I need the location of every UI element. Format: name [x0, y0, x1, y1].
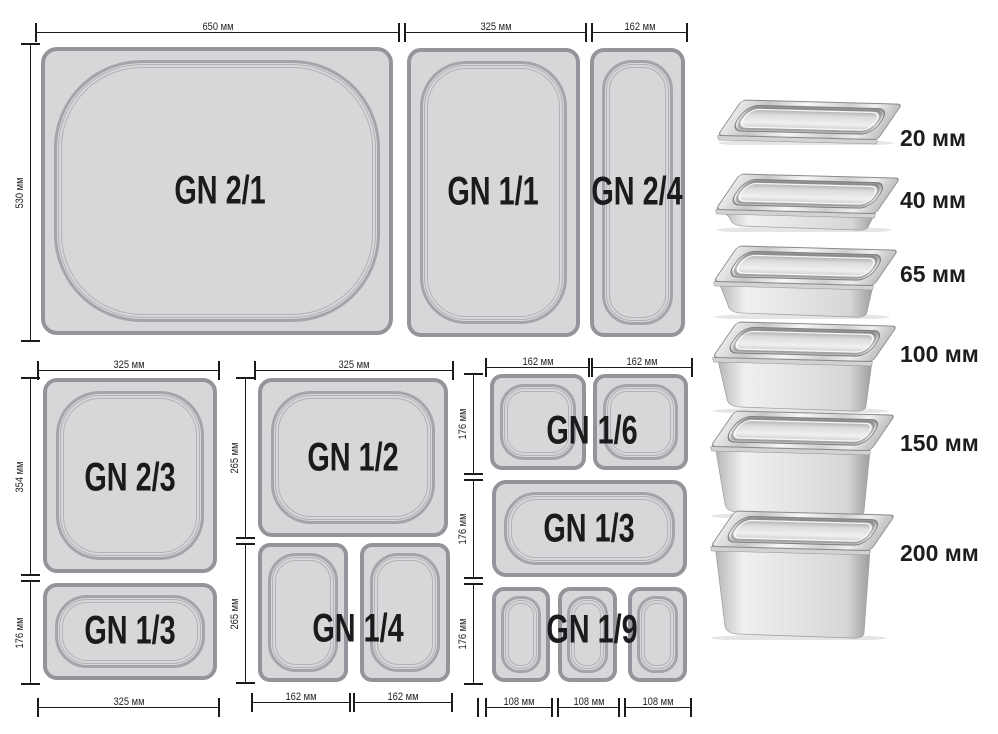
pan-label-gn-1-2: GN 1/2: [307, 436, 398, 481]
dim-br-176-b: 176 мм: [473, 480, 474, 578]
dim-br-top-162-b-label: 162 мм: [626, 356, 657, 368]
pan-label-gn-2-1: GN 2/1: [174, 169, 265, 214]
depth-label-65mm: 65 мм: [900, 260, 966, 288]
dim-bl-bottom-325-label: 325 мм: [113, 696, 144, 708]
dim-br-top-162-a: 162 мм: [486, 367, 589, 368]
pan-label-gn-1-6: GN 1/6: [546, 409, 637, 454]
pan-label-gn-2-4: GN 2/4: [591, 170, 682, 215]
pan-photo-svg: [699, 406, 899, 518]
dim-bl-354: 354 мм: [30, 378, 31, 575]
dim-top-162: 162 мм: [592, 32, 687, 33]
dim-br-bottom-108-b: 108 мм: [558, 707, 619, 708]
depth-label-100mm: 100 мм: [900, 340, 979, 368]
dim-br-bottom-108-a: 108 мм: [486, 707, 552, 708]
dim-br-176-b-label: 176 мм: [457, 513, 469, 544]
pan-label-gn-1-4: GN 1/4: [312, 607, 403, 652]
pan-label-gn-1-3-right: GN 1/3: [543, 507, 634, 552]
pan-rim-line: [508, 603, 534, 666]
depth-label-150mm: 150 мм: [900, 429, 979, 457]
dim-bm-265-b-label: 265 мм: [229, 598, 241, 629]
pan-photo-svg: [699, 506, 899, 640]
dim-br-176-c: 176 мм: [473, 584, 474, 684]
pan-photo-svg: [702, 241, 902, 319]
dim-bl-top-325-label: 325 мм: [113, 359, 144, 371]
dim-left-530-label: 530 мм: [14, 177, 26, 208]
dim-bm-265-a: 265 мм: [245, 378, 246, 538]
dim-bl-bottom-325: 325 мм: [38, 707, 219, 708]
dim-br-bottom-108-c-label: 108 мм: [642, 696, 673, 708]
pan-gn-1-9-a: [492, 587, 550, 682]
dim-bl-176: 176 мм: [30, 581, 31, 684]
dim-bm-bottom-162-a: 162 мм: [252, 702, 350, 703]
pan-label-gn-2-3: GN 2/3: [84, 456, 175, 501]
pan-rim-line: [644, 603, 671, 666]
pan-photo-200mm: [699, 506, 899, 645]
dim-bm-265-a-label: 265 мм: [229, 442, 241, 473]
dim-br-top-162-a-label: 162 мм: [522, 356, 553, 368]
depth-label-200mm: 200 мм: [900, 539, 979, 567]
pan-photo-20mm: [706, 95, 906, 150]
pan-photo-svg: [704, 169, 904, 232]
dim-br-176-a-label: 176 мм: [457, 408, 469, 439]
dim-br-bottom-108-c: 108 мм: [625, 707, 691, 708]
depth-label-20mm: 20 мм: [900, 124, 966, 152]
pan-label-gn-1-9: GN 1/9: [546, 608, 637, 653]
dim-top-325-label: 325 мм: [480, 21, 511, 33]
pan-photo-svg: [701, 317, 901, 413]
pan-photo-svg: [706, 95, 906, 145]
pan-photo-40mm: [704, 169, 904, 237]
dim-br-176-a: 176 мм: [473, 374, 474, 474]
dim-top-650: 650 мм: [36, 32, 399, 33]
dim-top-325: 325 мм: [405, 32, 586, 33]
dim-bm-top-325-label: 325 мм: [338, 359, 369, 371]
dim-bm-bottom-162-b-label: 162 мм: [387, 691, 418, 703]
dim-br-bottom-108-b-label: 108 мм: [573, 696, 604, 708]
pan-label-gn-1-1: GN 1/1: [447, 170, 538, 215]
dim-top-162-label: 162 мм: [624, 21, 655, 33]
dim-bm-top-325: 325 мм: [255, 370, 453, 371]
dim-bm-bottom-162-b: 162 мм: [354, 702, 452, 703]
depth-label-40mm: 40 мм: [900, 186, 966, 214]
dim-top-650-label: 650 мм: [202, 21, 233, 33]
dim-bm-265-b: 265 мм: [245, 544, 246, 683]
dim-br-176-c-label: 176 мм: [457, 618, 469, 649]
gn-pan-sizes-diagram: 650 мм 325 мм 162 мм 530 мм GN 2/1 GN 1/…: [0, 0, 998, 734]
dim-br-bottom-108-a-label: 108 мм: [503, 696, 534, 708]
pan-photo-100mm: [701, 317, 901, 418]
dim-bm-bottom-162-a-label: 162 мм: [285, 691, 316, 703]
dim-left-530: 530 мм: [30, 44, 31, 341]
pan-photo-65mm: [702, 241, 902, 324]
dim-br-top-162-b: 162 мм: [592, 367, 692, 368]
dim-bl-176-label: 176 мм: [14, 617, 26, 648]
dim-bl-top-325: 325 мм: [38, 370, 219, 371]
dim-extra-tick: [477, 698, 479, 717]
pan-label-gn-1-3-left: GN 1/3: [84, 609, 175, 654]
dim-bl-354-label: 354 мм: [14, 461, 26, 492]
